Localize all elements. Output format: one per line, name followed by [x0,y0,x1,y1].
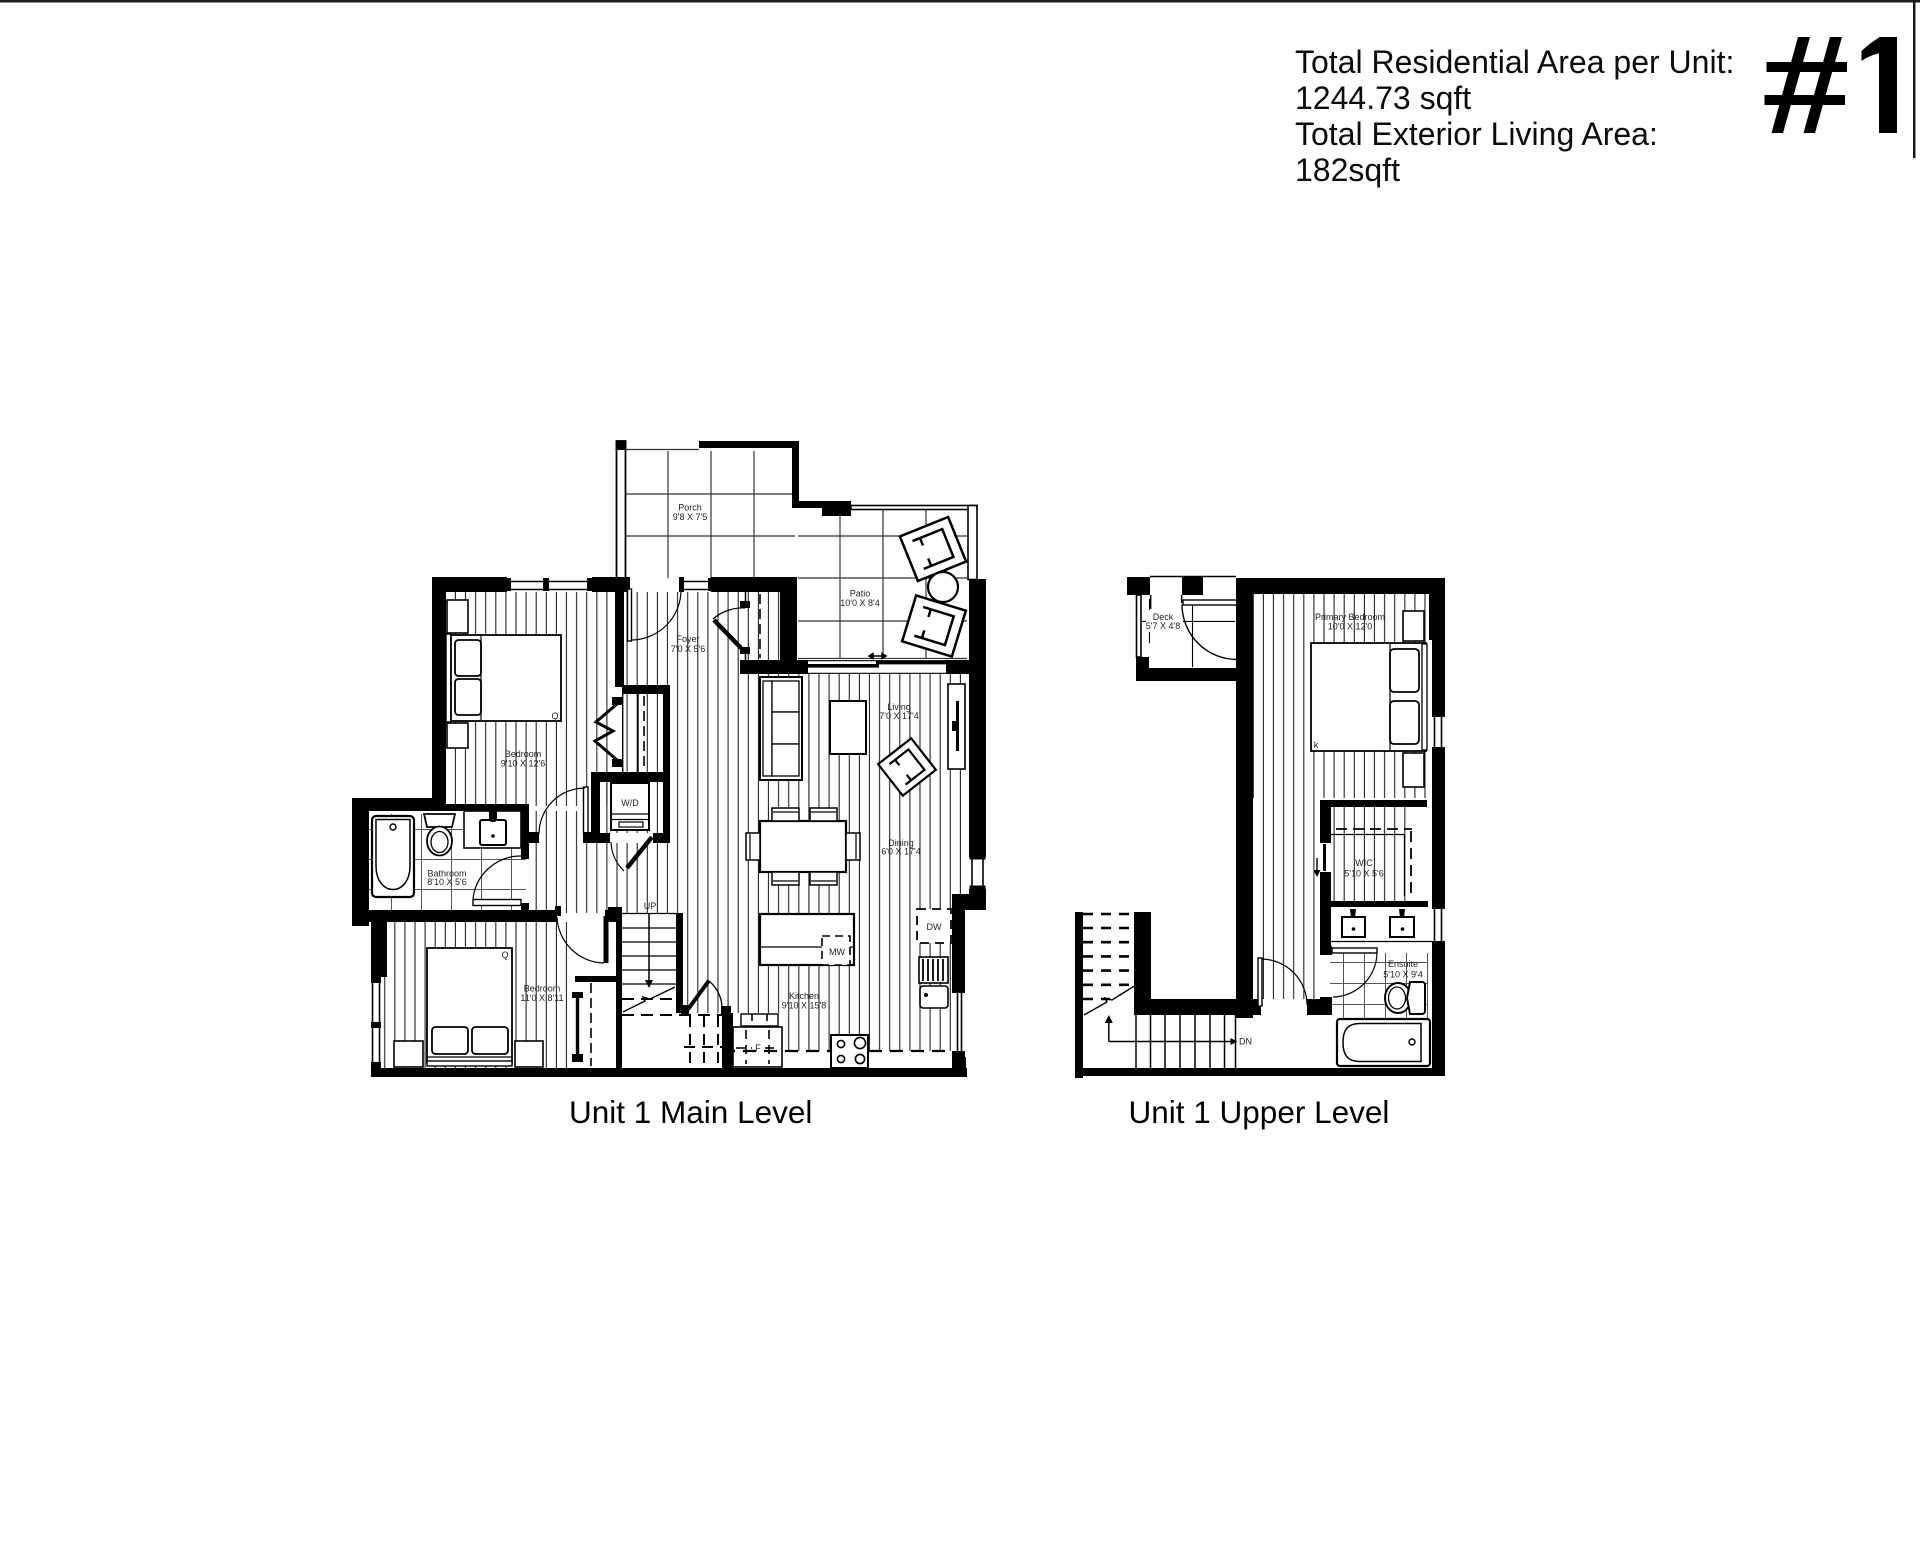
svg-text:7'0 X 17'4: 7'0 X 17'4 [879,711,918,721]
svg-text:MW: MW [829,947,845,957]
svg-text:Bedroom: Bedroom [505,749,542,759]
svg-text:8'10 X 5'6: 8'10 X 5'6 [427,877,466,887]
svg-text:Kitchen: Kitchen [789,991,819,1001]
svg-text:Primary Bedroom: Primary Bedroom [1315,612,1385,622]
svg-text:Q: Q [501,950,508,960]
svg-text:5'10 X 9'4: 5'10 X 9'4 [1383,970,1422,980]
svg-text:9'10 X 15'8: 9'10 X 15'8 [782,1001,826,1011]
svg-text:F: F [755,1043,761,1053]
svg-text:Q: Q [551,711,558,721]
svg-text:7'0 X 5'6: 7'0 X 5'6 [671,644,705,654]
svg-text:Foyer: Foyer [676,634,699,644]
svg-text:Bedroom: Bedroom [524,984,561,994]
svg-text:k: k [1314,740,1319,750]
svg-text:9'8 X 7'5: 9'8 X 7'5 [673,512,707,522]
svg-text:UP: UP [644,901,657,911]
svg-text:5'7 X 4'8: 5'7 X 4'8 [1146,621,1180,631]
svg-text:10'0 X 8'4: 10'0 X 8'4 [840,598,879,608]
svg-text:11'0 X 8'11: 11'0 X 8'11 [520,993,563,1003]
svg-text:Patio: Patio [850,589,871,599]
svg-text:DN: DN [1239,1037,1252,1047]
svg-text:5'10 X 5'6: 5'10 X 5'6 [1344,869,1383,879]
svg-text:9'10 X 12'6: 9'10 X 12'6 [501,759,545,769]
svg-text:W/D: W/D [621,798,639,808]
svg-text:Porch: Porch [678,503,702,513]
svg-text:WIC: WIC [1355,858,1373,868]
svg-text:DW: DW [927,922,942,932]
svg-text:Ensuite: Ensuite [1388,959,1418,969]
svg-text:6'0 X 17'4: 6'0 X 17'4 [881,847,920,857]
svg-text:10'0 X 12'0: 10'0 X 12'0 [1328,622,1372,632]
